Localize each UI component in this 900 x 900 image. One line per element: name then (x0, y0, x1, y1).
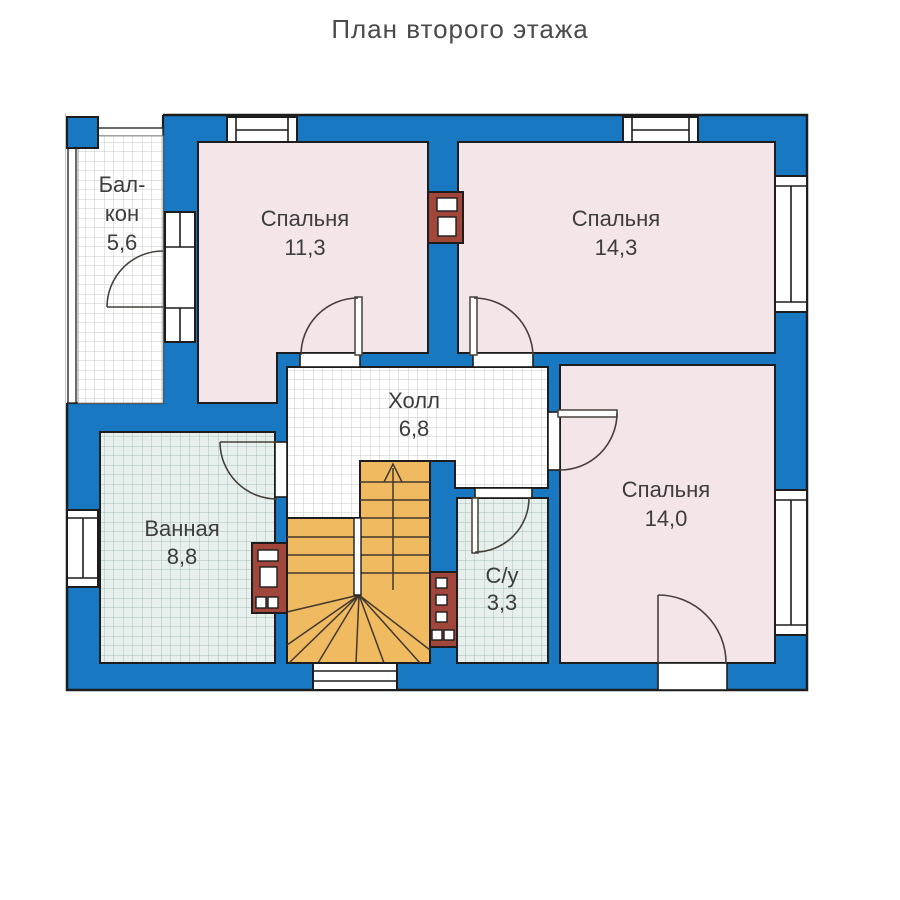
door-leaf-bedroom-left (355, 297, 362, 355)
balcony-door-window-unit (165, 212, 195, 342)
wc-label: С/у (486, 563, 519, 588)
flue (444, 630, 454, 640)
chimney-top (428, 192, 463, 243)
window-right-bedroom-right (775, 176, 807, 312)
bedroom-bottom-label: Спальня (622, 477, 710, 502)
flue (437, 198, 457, 211)
hall-area: 6,8 (399, 416, 430, 441)
stairs-handrail (354, 518, 361, 595)
flue (256, 597, 266, 608)
bedroom-left-area: 11,3 (284, 235, 325, 260)
flue (260, 567, 277, 587)
floor-plan-drawing: План второго этажа (0, 0, 900, 900)
plan-title: План второго этажа (331, 14, 588, 44)
balcony-label: Бал- (99, 172, 146, 197)
flue (432, 630, 442, 640)
window-left-bathroom (67, 510, 98, 587)
wc-area: 3,3 (487, 590, 518, 615)
flue (438, 217, 456, 236)
window-top-bedroom-right (623, 117, 698, 142)
hall-label: Холл (388, 388, 440, 413)
door-opening-bedroom-right (473, 353, 533, 367)
bathroom-area: 8,8 (167, 544, 198, 569)
flue (268, 597, 278, 608)
flue (436, 595, 447, 605)
door-opening-wc (475, 488, 532, 498)
balcony (67, 117, 163, 403)
balcony-corner-post (67, 117, 98, 148)
window-right-bedroom-bottom (775, 490, 807, 635)
balcony-area: 5,6 (107, 230, 138, 255)
bathroom-label: Ванная (144, 516, 219, 541)
chimney-stairs (430, 572, 457, 647)
flue (436, 578, 447, 588)
flue (436, 612, 447, 622)
door-opening-bedroom-bottom (548, 412, 560, 470)
door-opening-bathroom (275, 442, 287, 497)
bedroom-right-area: 14,3 (595, 235, 638, 260)
bedroom-bottom-area: 14,0 (645, 506, 688, 531)
floor-plan-page: План второго этажа (0, 0, 900, 900)
door-leaf-wc (472, 498, 478, 553)
bedroom-left-label: Спальня (261, 206, 349, 231)
door-leaf-bedroom-right (470, 297, 477, 355)
chimney-bathroom (252, 543, 287, 613)
door-opening-bedroom-left (300, 353, 360, 367)
window-top-bedroom-left (227, 117, 297, 142)
flue (258, 550, 278, 561)
window-bottom-stairs (313, 663, 397, 690)
door-opening-exterior (658, 663, 727, 690)
balcony-parapet-left (68, 128, 76, 403)
door-leaf-bedroom-bottom (558, 410, 617, 417)
balcony-label: кон (105, 201, 139, 226)
bedroom-right-label: Спальня (572, 206, 660, 231)
